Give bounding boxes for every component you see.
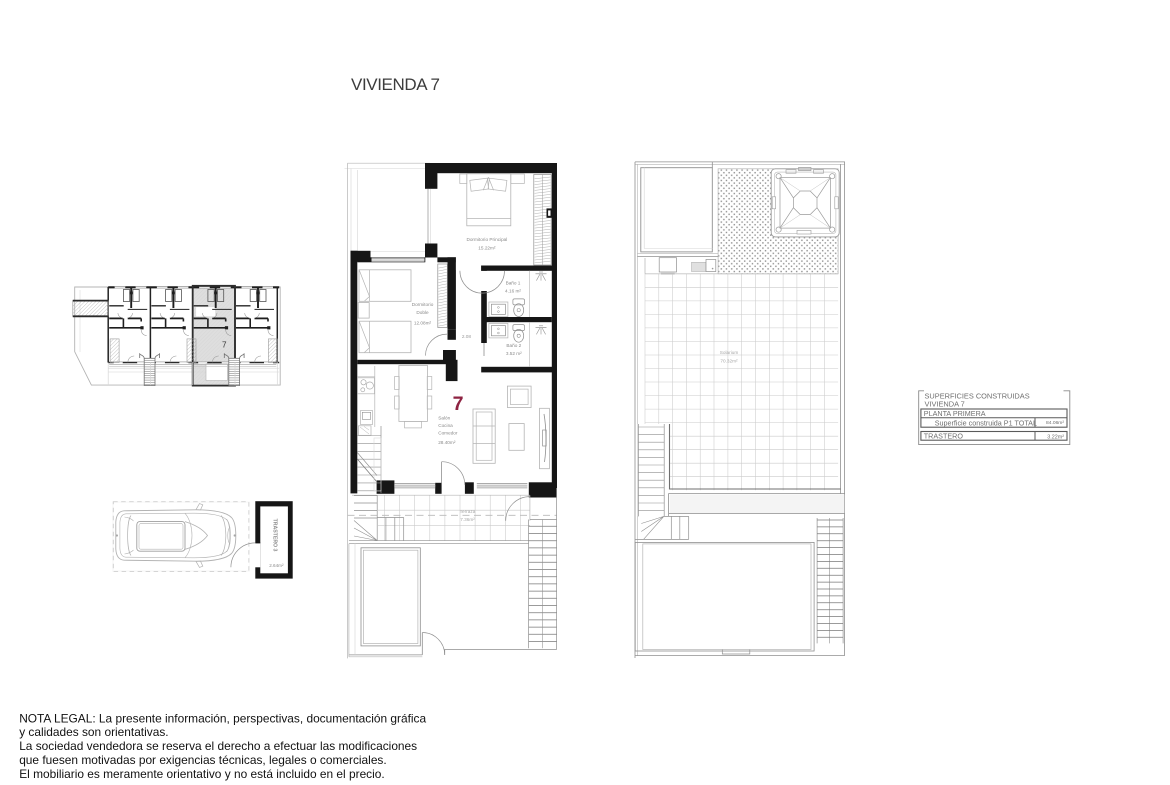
svg-text:Dormitorio Principal: Dormitorio Principal <box>466 237 507 242</box>
svg-text:12.08m²: 12.08m² <box>414 321 432 326</box>
svg-text:Solarium: Solarium <box>720 350 739 355</box>
svg-text:84.06m²: 84.06m² <box>1046 420 1064 426</box>
svg-text:Doble: Doble <box>416 310 429 315</box>
svg-text:y calidades son orientativas.: y calidades son orientativas. <box>19 725 168 739</box>
svg-text:PLANTA PRIMERA: PLANTA PRIMERA <box>924 409 986 418</box>
svg-text:Terraza: Terraza <box>460 509 476 514</box>
svg-text:Baño 2: Baño 2 <box>506 343 521 348</box>
svg-text:Salón: Salón <box>438 416 450 421</box>
svg-text:que fuesen motivadas por exige: que fuesen motivadas por exigencias técn… <box>19 753 387 767</box>
svg-text:NOTA LEGAL: La presente inform: NOTA LEGAL: La presente información, per… <box>19 711 426 725</box>
svg-text:VIVIENDA 7: VIVIENDA 7 <box>925 400 965 409</box>
svg-text:TRASTERO 3: TRASTERO 3 <box>272 519 278 552</box>
svg-text:15.22m²: 15.22m² <box>478 246 496 251</box>
svg-text:28.40m²: 28.40m² <box>438 440 456 445</box>
svg-text:Comedor: Comedor <box>438 431 458 436</box>
svg-text:Dormitorio: Dormitorio <box>412 302 434 307</box>
svg-text:7.36m²: 7.36m² <box>460 517 475 522</box>
svg-text:70.32m²: 70.32m² <box>720 359 738 364</box>
svg-text:2.64m²: 2.64m² <box>269 563 284 568</box>
svg-text:3.22m²: 3.22m² <box>1047 435 1064 441</box>
svg-text:3.52 m²: 3.52 m² <box>506 351 522 356</box>
svg-text:VIVIENDA 7: VIVIENDA 7 <box>351 75 440 94</box>
svg-text:Baño 1: Baño 1 <box>506 281 521 286</box>
svg-text:TRASTERO: TRASTERO <box>924 432 964 441</box>
svg-text:El mobiliario es meramente ori: El mobiliario es meramente orientativo y… <box>19 767 385 781</box>
svg-text:Superficie construida P1 TOTAL: Superficie construida P1 TOTAL <box>935 418 1037 427</box>
svg-text:2.08: 2.08 <box>462 334 472 339</box>
svg-text:7: 7 <box>222 340 227 349</box>
svg-text:7: 7 <box>453 393 464 415</box>
svg-text:4.16 m²: 4.16 m² <box>505 289 521 294</box>
svg-text:La sociedad vendedora se reser: La sociedad vendedora se reserva el dere… <box>19 739 417 753</box>
svg-text:Cocina: Cocina <box>438 423 453 428</box>
